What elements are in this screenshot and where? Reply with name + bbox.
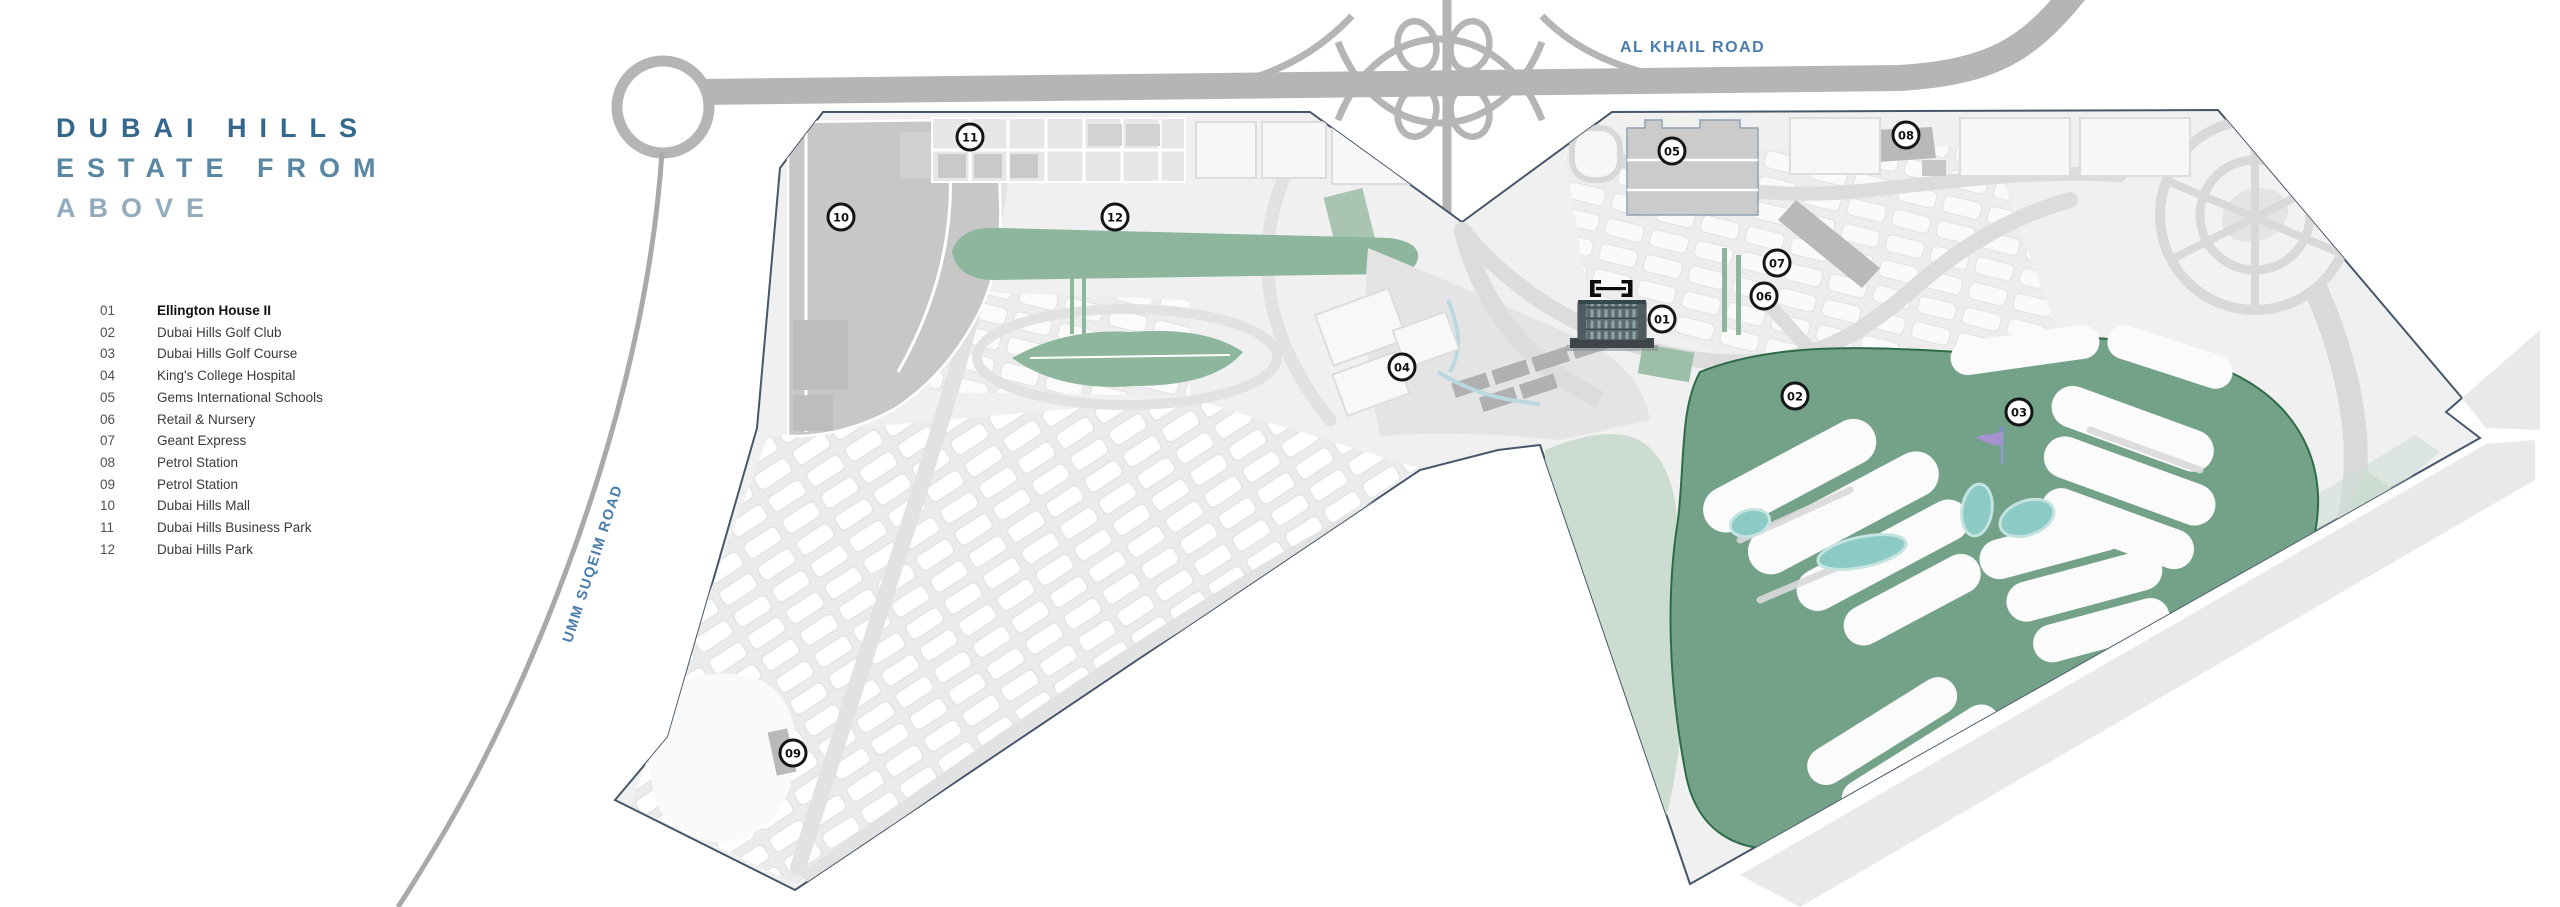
map-marker-04: 04 [1388,353,1417,382]
map-marker-09: 09 [779,739,808,768]
map-marker-05: 05 [1658,137,1687,166]
school-block [1627,120,1758,215]
map-marker-07: 07 [1763,249,1792,278]
roundabout [617,61,709,153]
map-marker-01: 01 [1648,305,1677,334]
page: DUBAI HILLS ESTATE FROM ABOVE 01Ellingto… [0,0,2560,907]
map-marker-02: 02 [1781,382,1810,411]
map-marker-12: 12 [1101,203,1130,232]
al-khail-road-label: AL KHAIL ROAD [1620,39,1765,56]
map-marker-06: 06 [1750,282,1779,311]
map-canvas: AL KHAIL ROAD UMM SUQEIM ROAD [0,0,2560,907]
ellington-house-building [1566,300,1658,351]
map-marker-08: 08 [1892,121,1921,150]
map-marker-10: 10 [827,203,856,232]
map-marker-03: 03 [2005,398,2034,427]
map-marker-11: 11 [956,123,985,152]
right-community [1462,117,2440,862]
